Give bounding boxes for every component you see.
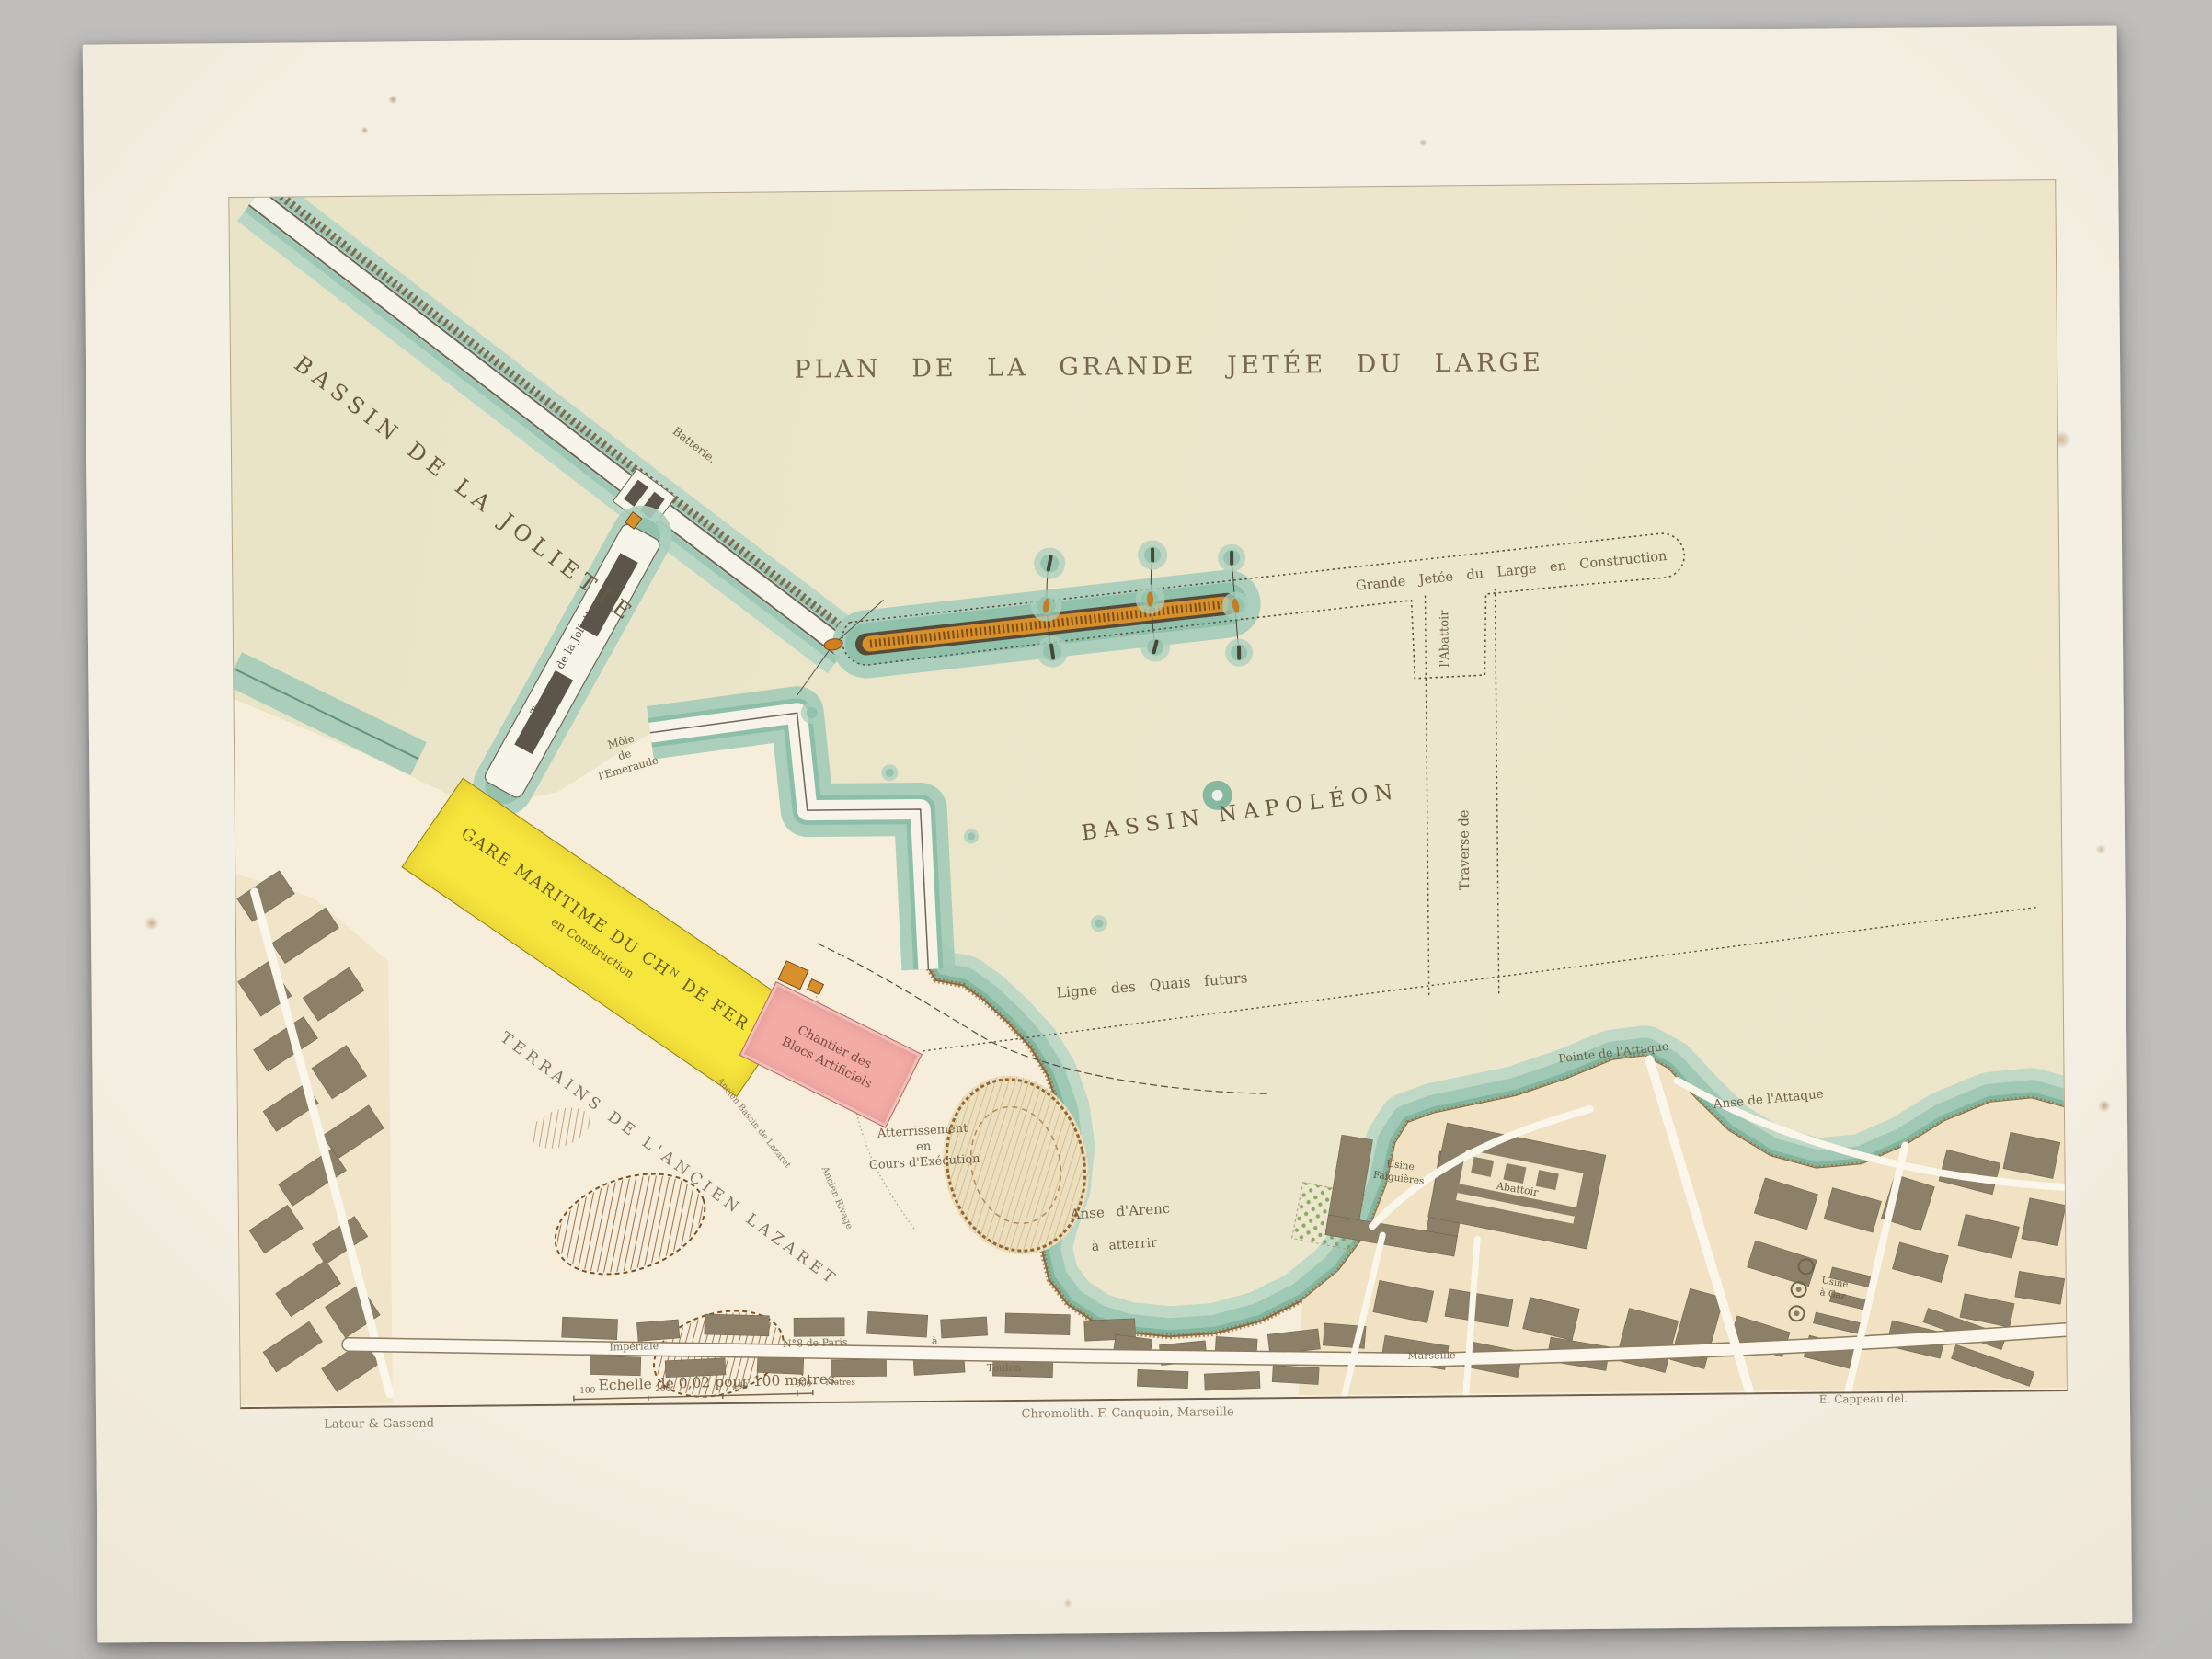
- joliette-breakwater: [248, 180, 855, 663]
- foxing-spot: [361, 127, 369, 134]
- label-atterrissement: Atterrissement en Cours d'Exécution: [866, 1121, 980, 1174]
- label-route-imperiale: Impériale: [609, 1340, 659, 1355]
- foxing-spot: [144, 916, 159, 931]
- traverse-dotted-band: [1425, 589, 1498, 996]
- credit-draughtsman: E. Cappeau del.: [1819, 1392, 1908, 1406]
- photo-of-lithograph-plate: { "header": { "title": "TRAVAUX HYDRAULI…: [0, 0, 2212, 1659]
- foxing-spot: [388, 95, 397, 104]
- foxing-spot: [2098, 1100, 2111, 1113]
- scale-tick-500: 500: [796, 1379, 811, 1390]
- scale-tick-400: 400: [732, 1382, 748, 1393]
- label-route-n8: N°8 de Paris: [783, 1336, 848, 1351]
- label-route-a: à: [932, 1335, 938, 1348]
- map-plate: PLAN DE LA GRANDE JETÉE DU LARGE BASSIN …: [228, 179, 2068, 1409]
- foxing-spot: [1063, 1598, 1072, 1608]
- foxing-spot: [1419, 139, 1427, 147]
- foxing-spot: [2095, 844, 2106, 855]
- scale-tick-100: 100: [579, 1387, 595, 1398]
- lithograph-paper-sheet: TRAVAUX HYDRAULIQUES MARITIMES. Construc…: [83, 25, 2133, 1642]
- credit-printer: Chromolith. F. Canquoin, Marseille: [1021, 1405, 1233, 1421]
- scale-tick-200: 200: [655, 1385, 670, 1396]
- label-route-toulon: Toulon: [987, 1362, 1022, 1376]
- label-traverse-de: Traverse de: [1456, 809, 1474, 890]
- scale-unit: Mètres: [825, 1379, 855, 1390]
- label-abattoir-jetee: l'Abattoir: [1438, 610, 1453, 667]
- credit-publisher: Latour & Gassend: [324, 1417, 434, 1432]
- ligne-quais-dotted: [922, 907, 2040, 1051]
- label-usine-gaz: Usine à Gaz: [1818, 1275, 1849, 1302]
- label-route-marseille: Marseille: [1407, 1349, 1455, 1363]
